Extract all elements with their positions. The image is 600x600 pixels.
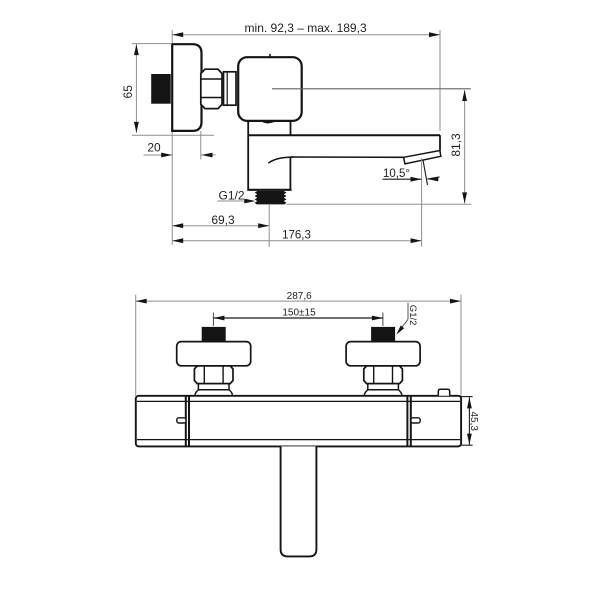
- svg-text:20: 20: [147, 141, 161, 155]
- svg-text:65: 65: [121, 85, 135, 99]
- svg-text:81,3: 81,3: [449, 133, 463, 157]
- svg-text:min. 92,3 – max. 189,3: min. 92,3 – max. 189,3: [245, 21, 367, 35]
- svg-text:69,3: 69,3: [211, 213, 235, 227]
- svg-text:45,3: 45,3: [468, 412, 479, 432]
- svg-text:10,5°: 10,5°: [383, 168, 410, 180]
- svg-text:176,3: 176,3: [282, 230, 311, 242]
- svg-text:G1/2: G1/2: [407, 305, 418, 326]
- svg-text:150±15: 150±15: [282, 308, 316, 319]
- svg-text:287,6: 287,6: [287, 291, 312, 302]
